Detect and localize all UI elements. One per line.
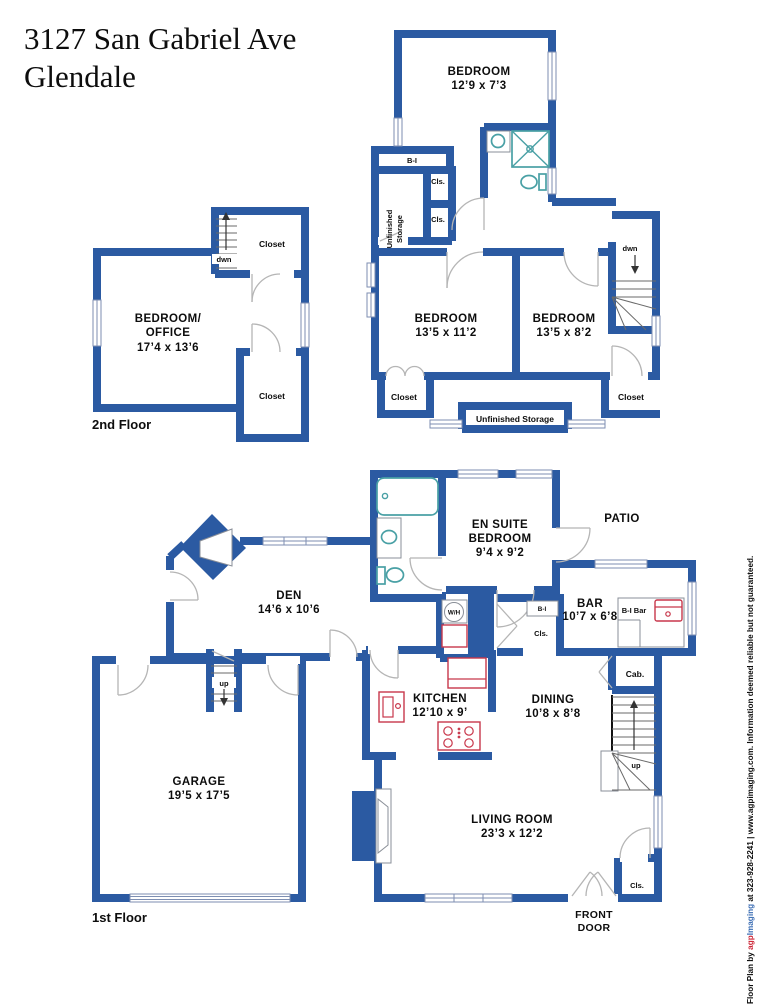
appliance	[442, 625, 467, 647]
den-fireplace	[180, 514, 246, 580]
living-fireplace	[352, 789, 391, 863]
bar-sink	[655, 600, 682, 621]
closet-label: Closet	[259, 239, 285, 249]
bedroom-left-name: BEDROOM	[415, 313, 478, 325]
window	[93, 300, 101, 346]
bar-name: BAR	[577, 598, 603, 610]
bedroom-right-dims: 13’5 x 8’2	[536, 327, 591, 339]
dining-dims: 10’8 x 8’8	[525, 708, 580, 720]
sink-icon	[492, 135, 505, 148]
hall-closet: B-I Cls.	[527, 601, 558, 638]
ensuite-name2: BEDROOM	[469, 533, 532, 545]
watermark-suffix: at 323-928-2241 | www.agpimaging.com. In…	[746, 556, 755, 904]
stairs-up-label: up	[219, 679, 229, 688]
patio-label: PATIO	[604, 513, 639, 525]
closet-label: Cls.	[431, 177, 445, 186]
den-dims: 14’6 x 10’6	[258, 604, 320, 616]
watermark-credit: Floor Plan by agpImaging at 323-928-2241…	[746, 556, 755, 1004]
address-title-line1: 3127 San Gabriel Ave	[24, 21, 296, 56]
stairs-down-label: dwn	[217, 255, 232, 264]
ensuite-dims: 9’4 x 9’2	[476, 547, 524, 559]
doors	[250, 270, 296, 356]
window	[301, 303, 309, 347]
bathroom-2f	[487, 131, 549, 190]
stairs-down-right: dwn	[612, 243, 656, 330]
toilet-tank	[539, 174, 546, 190]
refrigerator	[448, 658, 486, 688]
floor2-left-unit: dwn Closet Closet BEDROOM/ OFFICE 17’4 x…	[92, 207, 309, 442]
storage-bottom-label: Unfinished Storage	[476, 414, 554, 424]
watermark-brand-imaging: Imaging	[746, 904, 755, 935]
stairs-down-left: dwn	[93, 212, 309, 347]
floor1-label: 1st Floor	[92, 910, 147, 925]
address-title-line2: Glendale	[24, 59, 136, 94]
floor1: W/H B-I Cls. B-I Bar	[92, 470, 696, 934]
storage-label-vert2: Storage	[395, 215, 404, 243]
bedroom-office-dims: 17’4 x 13’6	[137, 342, 199, 354]
closet-label: Cls.	[431, 215, 445, 224]
toilet-tank	[377, 567, 385, 584]
toilet-icon	[521, 176, 537, 189]
kitchen-name: KITCHEN	[413, 693, 467, 705]
watermark-prefix: Floor Plan by	[746, 950, 755, 1004]
garage-dims: 19’5 x 17’5	[168, 790, 230, 802]
built-in-label: B-I	[538, 606, 547, 613]
closet-label: Closet	[618, 392, 644, 402]
bathroom-1f	[377, 478, 438, 584]
front-door-label1: FRONT	[575, 909, 613, 921]
floor2-right-unit: dwn BEDROOM 12’9 x 7’3 B-I Unfinished St…	[367, 30, 660, 429]
floor-plan-canvas: 3127 San Gabriel Ave Glendale dwn Closet…	[0, 0, 779, 1008]
closet-label: Closet	[391, 392, 417, 402]
bathtub	[377, 478, 438, 515]
closet-label: Cls.	[630, 881, 644, 890]
ensuite-name1: EN SUITE	[472, 519, 528, 531]
bedroom-top-name: BEDROOM	[448, 66, 511, 78]
den-name: DEN	[276, 590, 301, 602]
floor-plan-page: 3127 San Gabriel Ave Glendale dwn Closet…	[0, 0, 779, 1008]
walls	[371, 30, 660, 429]
stairs-down-label: dwn	[623, 244, 638, 253]
bar-counter: B-I Bar	[618, 598, 684, 647]
water-heater-label: W/H	[448, 610, 461, 617]
living-dims: 23’3 x 12’2	[481, 828, 543, 840]
bedroom-top-dims: 12’9 x 7’3	[451, 80, 506, 92]
stairs-up-label: up	[631, 761, 641, 770]
sink-icon	[382, 531, 397, 544]
stairs-up-right: up	[601, 695, 656, 791]
storage-label-vert1: Unfinished	[385, 209, 394, 248]
kitchen-dims: 12’10 x 9’	[412, 707, 467, 719]
toilet-icon	[387, 568, 404, 582]
bedroom-office-name1: BEDROOM/	[135, 313, 202, 325]
closet-label: Closet	[259, 391, 285, 401]
garage-name: GARAGE	[173, 776, 226, 788]
closet-label: Cls.	[534, 629, 548, 638]
bar-built-in-label: B-I Bar	[622, 606, 647, 615]
built-in-label: B-I	[407, 156, 417, 165]
bedroom-office-name2: OFFICE	[146, 327, 191, 339]
front-door-label2: DOOR	[578, 922, 611, 934]
dining-name: DINING	[532, 694, 575, 706]
cabinet-label: Cab.	[626, 669, 644, 679]
watermark-brand-agp: agp	[746, 935, 755, 950]
bedroom-left-dims: 13’5 x 11’2	[415, 327, 476, 339]
bar-dims: 10’7 x 6’8	[562, 611, 617, 623]
floor2-label: 2nd Floor	[92, 417, 151, 432]
bedroom-right-name: BEDROOM	[533, 313, 596, 325]
utility: W/H	[442, 600, 467, 647]
stairs-up-mid: up	[211, 666, 237, 706]
garage-door	[130, 894, 290, 902]
living-name: LIVING ROOM	[471, 814, 553, 826]
